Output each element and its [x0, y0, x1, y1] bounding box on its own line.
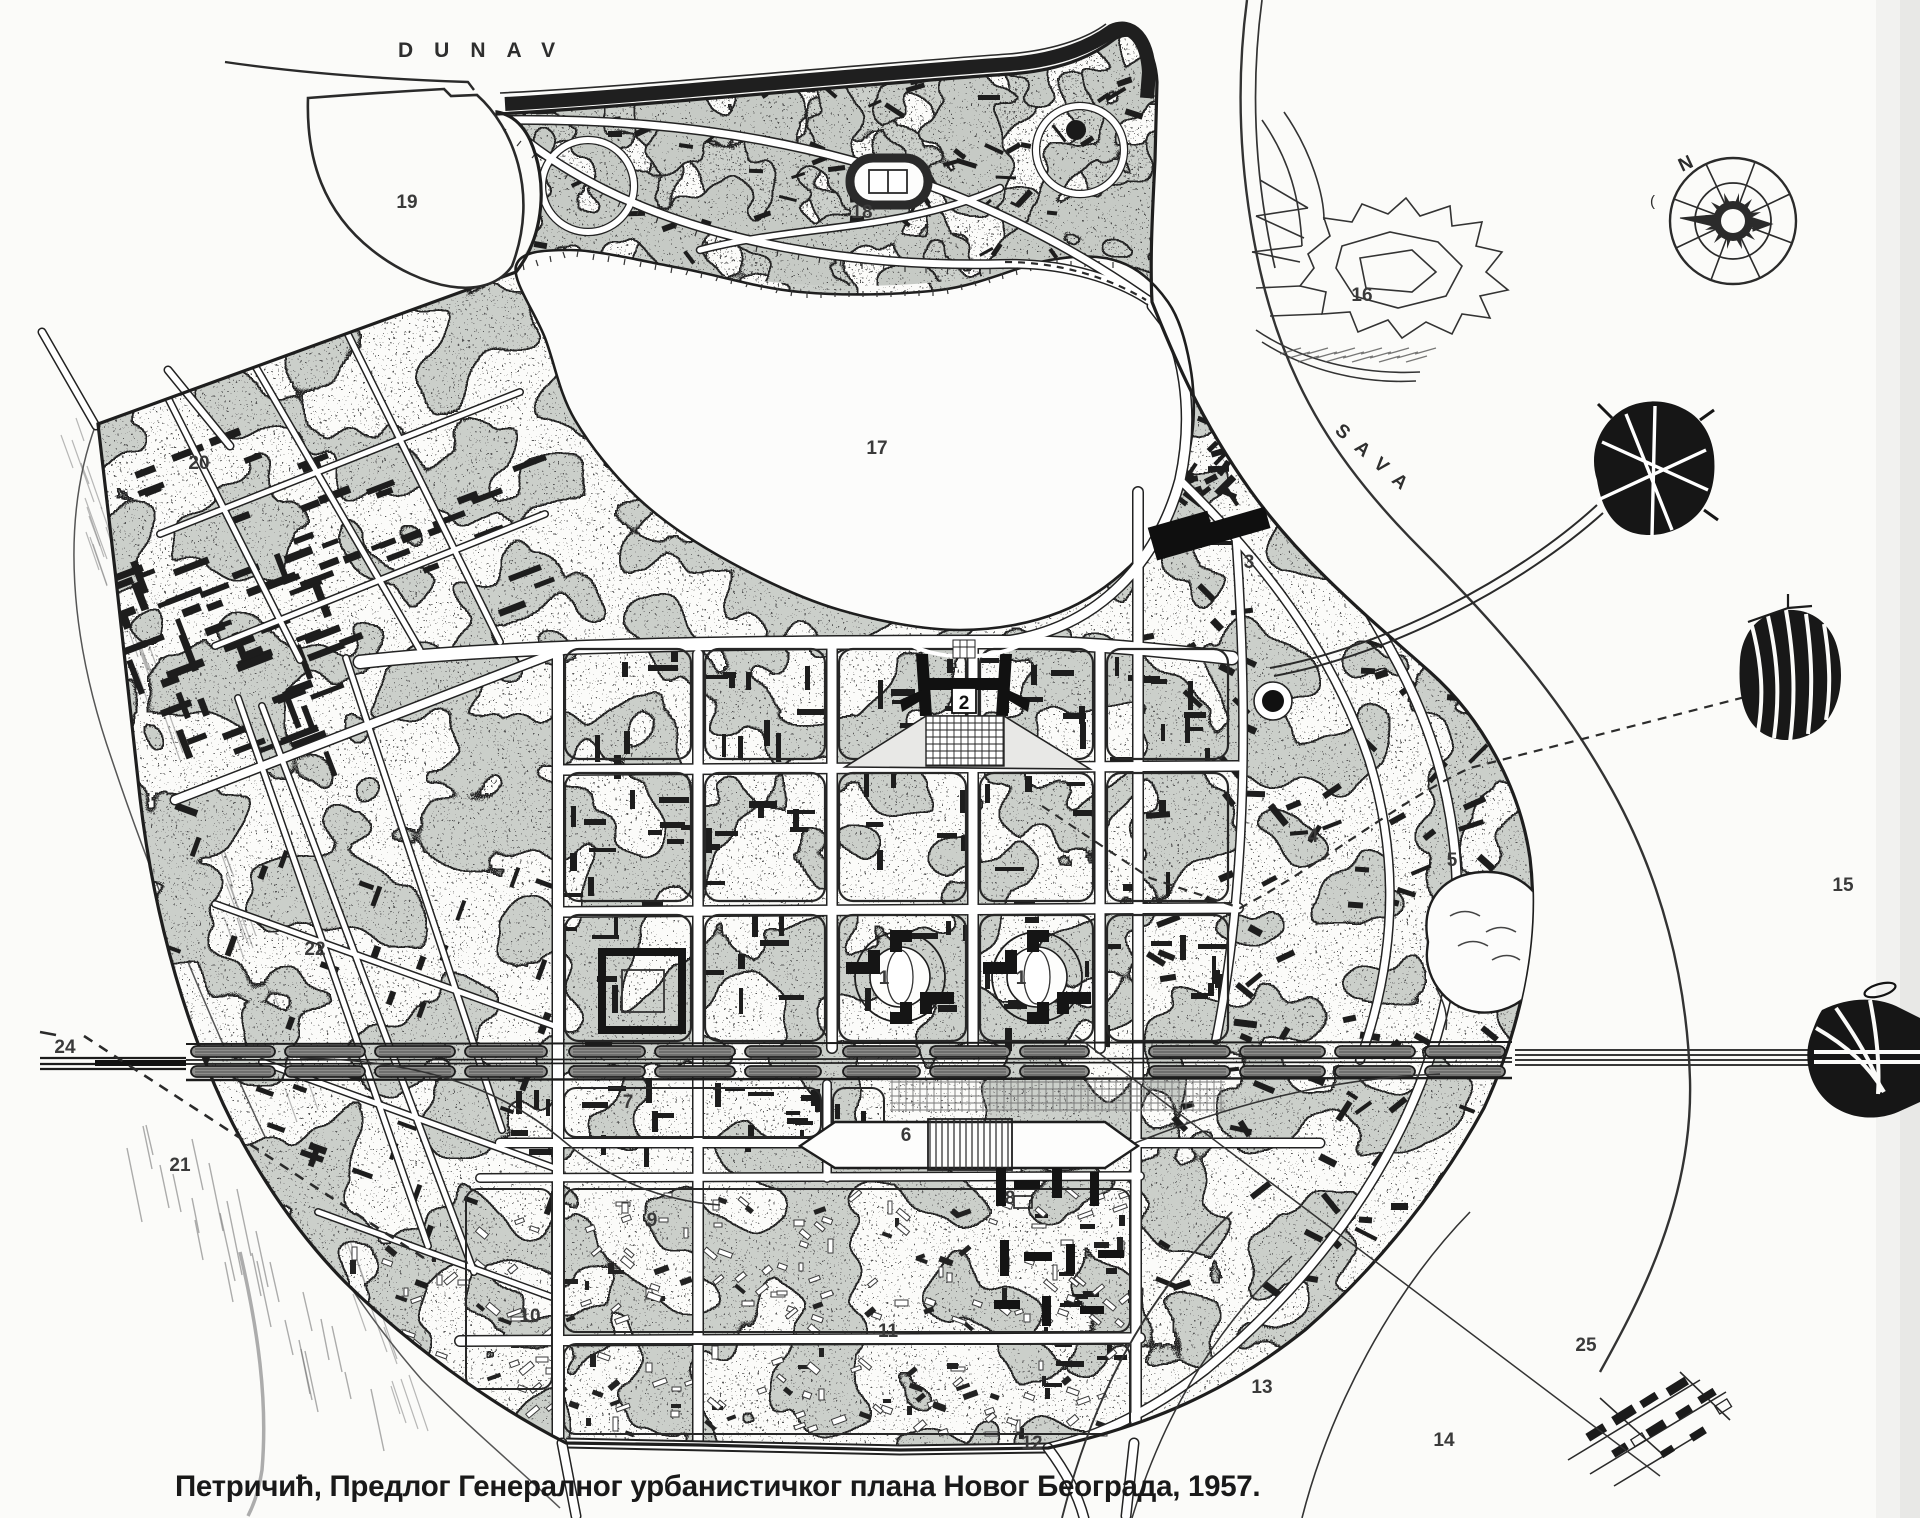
svg-text:18: 18	[851, 202, 872, 223]
svg-text:13: 13	[1251, 1377, 1272, 1398]
svg-text:1: 1	[1016, 968, 1027, 989]
svg-text:4: 4	[1308, 826, 1319, 847]
svg-text:6: 6	[901, 1125, 912, 1146]
svg-text:10: 10	[519, 1306, 540, 1327]
svg-text:11: 11	[878, 1321, 899, 1342]
svg-text:20: 20	[188, 453, 209, 474]
svg-text:DUNAV: DUNAV	[398, 39, 576, 62]
svg-text:12: 12	[1021, 1433, 1042, 1454]
svg-text:24: 24	[54, 1037, 76, 1058]
svg-text:2: 2	[959, 693, 970, 714]
svg-text:1: 1	[879, 968, 890, 989]
svg-text:(: (	[1650, 193, 1655, 210]
svg-text:14: 14	[1433, 1430, 1455, 1451]
svg-text:8: 8	[1005, 1188, 1016, 1209]
svg-text:22: 22	[304, 939, 325, 960]
svg-text:17: 17	[866, 438, 887, 459]
svg-text:19: 19	[396, 192, 417, 213]
svg-text:21: 21	[169, 1155, 191, 1176]
svg-text:16: 16	[1351, 285, 1372, 306]
svg-text:7: 7	[623, 1092, 634, 1113]
svg-text:25: 25	[1575, 1335, 1597, 1356]
svg-text:9: 9	[647, 1210, 658, 1231]
svg-text:15: 15	[1832, 875, 1854, 896]
svg-text:Петричић, Предлог Генералног у: Петричић, Предлог Генералног урбанистичк…	[175, 1470, 1260, 1503]
svg-text:5: 5	[1447, 850, 1458, 871]
svg-text:3: 3	[1244, 552, 1255, 573]
